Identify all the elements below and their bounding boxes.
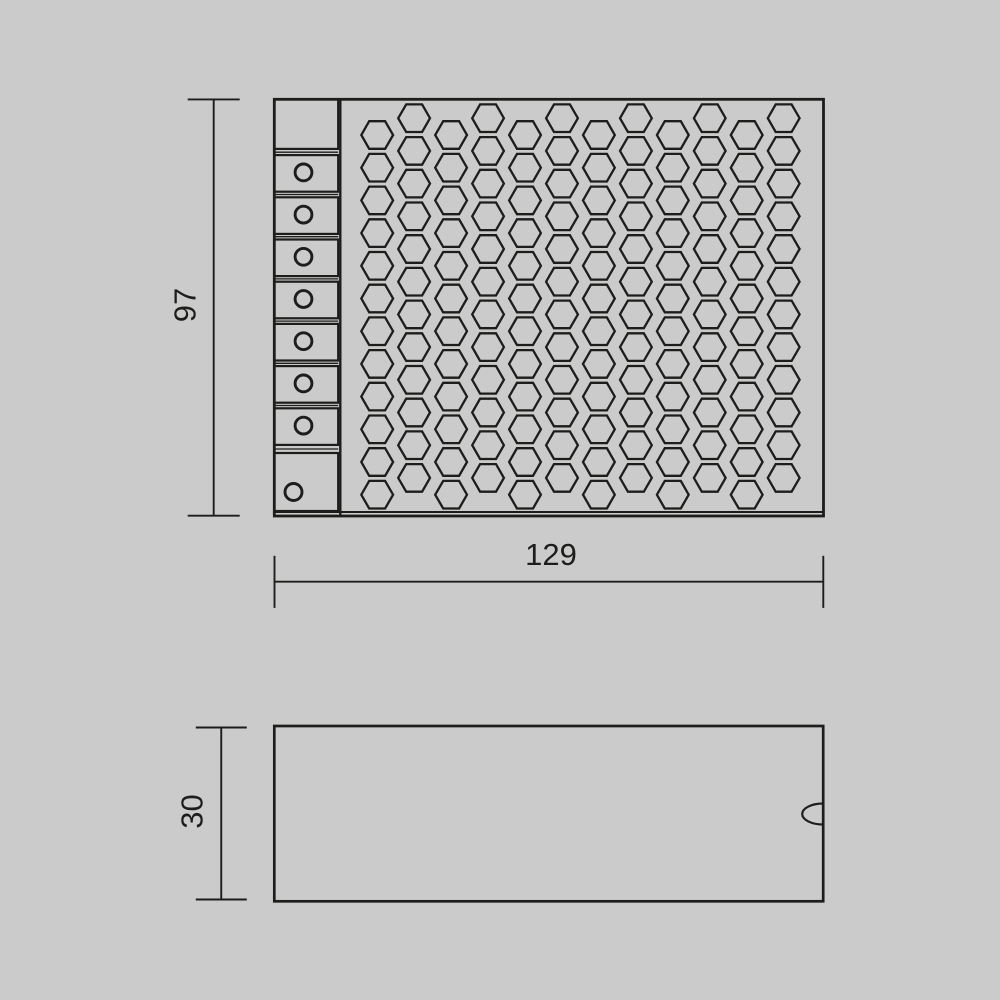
svg-text:97: 97: [168, 288, 203, 322]
svg-text:129: 129: [525, 537, 577, 572]
svg-text:30: 30: [175, 794, 210, 828]
